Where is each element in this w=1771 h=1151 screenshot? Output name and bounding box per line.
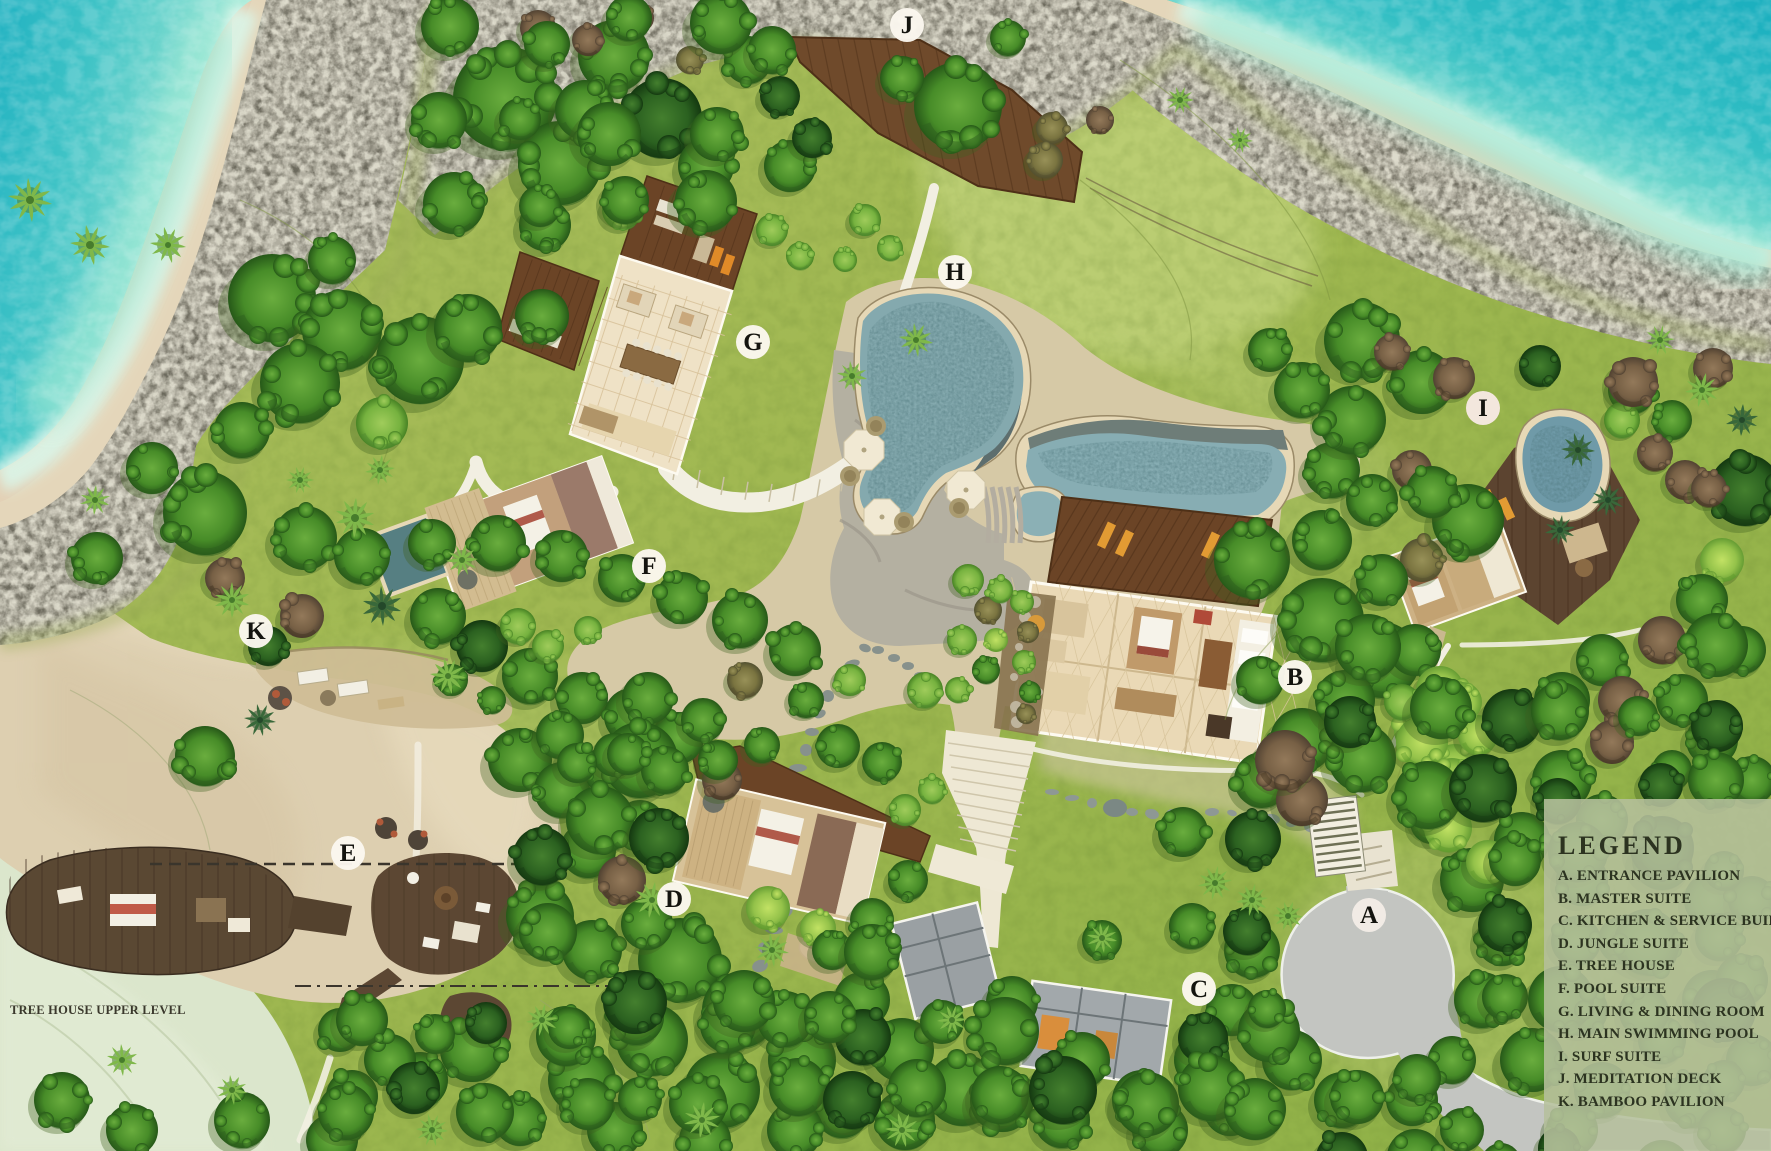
svg-text:I: I (1478, 395, 1488, 422)
svg-text:K. BAMBOO PAVILION: K. BAMBOO PAVILION (1558, 1094, 1725, 1110)
svg-text:G. LIVING & DINING ROOM: G. LIVING & DINING ROOM (1558, 1004, 1765, 1020)
svg-text:A. ENTRANCE PAVILION: A. ENTRANCE PAVILION (1558, 868, 1740, 884)
svg-text:J: J (901, 12, 914, 39)
svg-text:J. MEDITATION DECK: J. MEDITATION DECK (1558, 1071, 1722, 1087)
svg-text:F. POOL SUITE: F. POOL SUITE (1558, 981, 1666, 997)
svg-text:K: K (246, 618, 266, 645)
svg-text:D. JUNGLE SUITE: D. JUNGLE SUITE (1558, 936, 1689, 952)
svg-text:H: H (945, 259, 965, 286)
svg-text:LEGEND: LEGEND (1558, 831, 1686, 860)
svg-text:C. KITCHEN & SERVICE BUILDING: C. KITCHEN & SERVICE BUILDING (1558, 913, 1771, 929)
svg-text:E: E (340, 840, 357, 867)
svg-text:G: G (743, 329, 762, 356)
svg-text:F: F (641, 553, 656, 580)
svg-text:E. TREE HOUSE: E. TREE HOUSE (1558, 958, 1675, 974)
svg-text:C: C (1190, 976, 1208, 1003)
svg-text:D: D (665, 886, 683, 913)
svg-text:B: B (1287, 664, 1304, 691)
svg-text:B. MASTER SUITE: B. MASTER SUITE (1558, 891, 1691, 907)
svg-text:A: A (1360, 902, 1378, 929)
svg-text:TREE HOUSE UPPER LEVEL: TREE HOUSE UPPER LEVEL (10, 1003, 186, 1017)
svg-text:H. MAIN SWIMMING POOL: H. MAIN SWIMMING POOL (1558, 1026, 1759, 1042)
svg-text:I. SURF SUITE: I. SURF SUITE (1558, 1049, 1661, 1065)
